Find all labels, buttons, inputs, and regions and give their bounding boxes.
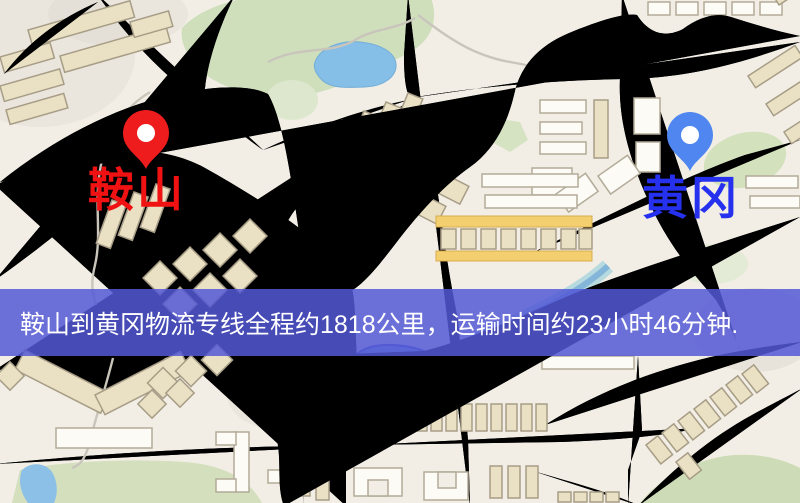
route-info-text: 鞍山到黄冈物流专线全程约1818公里，运输时间约23小时46分钟. <box>20 305 738 341</box>
map-canvas <box>0 0 800 503</box>
origin-city-label: 鞍山 <box>88 167 186 213</box>
logistics-route-map: 鞍山 黄冈 鞍山到黄冈物流专线全程约1818公里，运输时间约23小时46分钟. <box>0 0 800 503</box>
route-info-banner: 鞍山到黄冈物流专线全程约1818公里，运输时间约23小时46分钟. <box>0 289 800 356</box>
destination-pin-hole <box>681 126 699 144</box>
destination-city-label: 黄冈 <box>642 175 740 221</box>
origin-pin-hole <box>137 124 155 142</box>
